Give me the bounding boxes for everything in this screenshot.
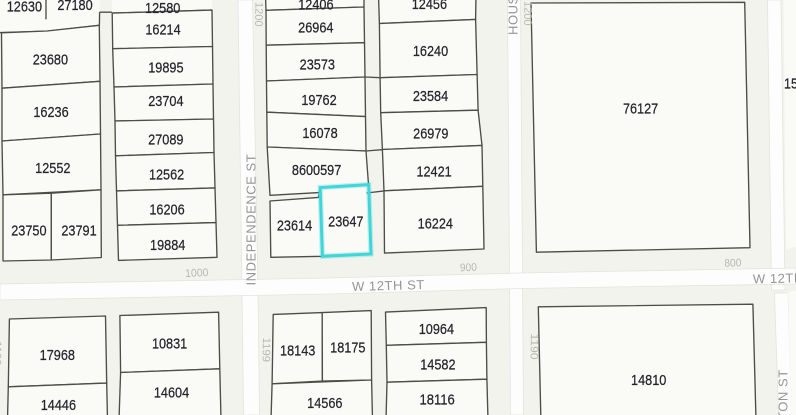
svg-text:W 12TH ST: W 12TH ST — [753, 270, 796, 287]
svg-text:17968: 17968 — [40, 347, 75, 364]
svg-text:12580: 12580 — [145, 0, 180, 17]
svg-text:14582: 14582 — [420, 357, 455, 374]
svg-text:16240: 16240 — [413, 43, 448, 60]
svg-text:27180: 27180 — [57, 0, 92, 14]
svg-text:800: 800 — [724, 257, 741, 270]
svg-text:900: 900 — [460, 262, 477, 275]
svg-text:TON ST: TON ST — [776, 369, 791, 415]
svg-text:INDEPENDENCE ST: INDEPENDENCE ST — [244, 154, 259, 286]
svg-text:23704: 23704 — [148, 93, 183, 110]
svg-text:23680: 23680 — [33, 51, 68, 68]
svg-text:12562: 12562 — [149, 167, 184, 184]
svg-text:16206: 16206 — [149, 202, 184, 219]
svg-text:23750: 23750 — [11, 223, 46, 240]
svg-text:12552: 12552 — [35, 160, 70, 177]
svg-text:8600597: 8600597 — [292, 162, 341, 179]
svg-text:18143: 18143 — [280, 342, 315, 359]
svg-text:1200: 1200 — [252, 2, 264, 27]
svg-text:14604: 14604 — [154, 385, 189, 402]
svg-text:1000: 1000 — [185, 267, 209, 280]
svg-text:27089: 27089 — [148, 132, 183, 149]
svg-text:12630: 12630 — [7, 0, 42, 15]
svg-text:10964: 10964 — [419, 321, 454, 338]
svg-text:1190: 1190 — [528, 333, 540, 359]
svg-text:12406: 12406 — [298, 0, 333, 13]
svg-text:26964: 26964 — [298, 20, 333, 37]
svg-text:15: 15 — [784, 76, 796, 93]
svg-text:12421: 12421 — [416, 164, 451, 181]
svg-text:76127: 76127 — [623, 101, 658, 118]
svg-text:16224: 16224 — [418, 216, 453, 233]
svg-text:16078: 16078 — [302, 125, 337, 142]
svg-text:1199: 1199 — [0, 341, 3, 366]
svg-text:1199: 1199 — [260, 337, 272, 362]
svg-text:14446: 14446 — [41, 397, 76, 414]
svg-text:10831: 10831 — [152, 336, 187, 353]
svg-text:23573: 23573 — [300, 57, 335, 74]
svg-text:HOUSTON ST: HOUSTON ST — [506, 0, 521, 35]
svg-text:18175: 18175 — [330, 339, 365, 356]
svg-text:16214: 16214 — [145, 21, 180, 38]
svg-text:12456: 12456 — [412, 0, 447, 13]
svg-text:W 12TH ST: W 12TH ST — [352, 277, 425, 294]
svg-text:26979: 26979 — [413, 126, 448, 143]
svg-text:14810: 14810 — [631, 372, 666, 389]
svg-text:23791: 23791 — [61, 223, 96, 240]
svg-text:16236: 16236 — [33, 104, 68, 121]
svg-text:23584: 23584 — [413, 88, 448, 105]
svg-text:23647: 23647 — [328, 214, 363, 231]
svg-text:1200: 1200 — [521, 1, 533, 26]
svg-text:19762: 19762 — [301, 92, 336, 109]
svg-text:18116: 18116 — [419, 391, 454, 408]
svg-text:19884: 19884 — [150, 237, 185, 254]
svg-text:14566: 14566 — [307, 395, 342, 412]
svg-text:23614: 23614 — [277, 217, 312, 234]
svg-text:19895: 19895 — [148, 60, 183, 77]
